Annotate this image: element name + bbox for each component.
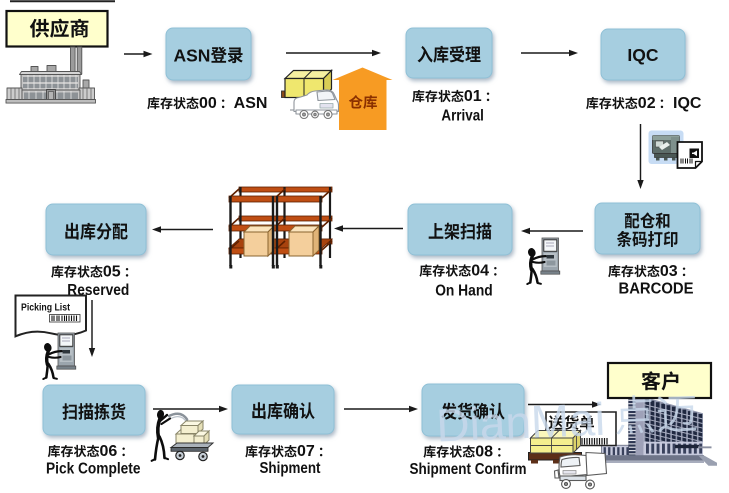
svg-text:On Hand: On Hand — [435, 282, 493, 299]
svg-text:Arrival: Arrival — [441, 107, 484, 124]
svg-text:ASN: ASN — [174, 46, 211, 66]
svg-text:01: 01 — [464, 88, 482, 105]
svg-text:DianMai: DianMai — [435, 393, 606, 452]
svg-text:BARCODE: BARCODE — [619, 281, 694, 298]
svg-text:06: 06 — [100, 443, 118, 460]
svg-text:IQC: IQC — [669, 95, 702, 112]
svg-text:Pick Complete: Pick Complete — [46, 461, 141, 478]
svg-text:Picking List: Picking List — [21, 302, 70, 314]
svg-text:Shipment Confirm: Shipment Confirm — [410, 461, 527, 478]
svg-text:02: 02 — [638, 95, 656, 112]
svg-text:IQC: IQC — [627, 45, 658, 65]
svg-text:ASN: ASN — [230, 95, 268, 112]
svg-text:00: 00 — [199, 95, 217, 112]
svg-text:Shipment: Shipment — [260, 460, 322, 477]
svg-text:07: 07 — [297, 443, 315, 460]
svg-text:05: 05 — [103, 264, 121, 281]
svg-text:04: 04 — [471, 263, 489, 280]
svg-text:03: 03 — [660, 263, 678, 280]
